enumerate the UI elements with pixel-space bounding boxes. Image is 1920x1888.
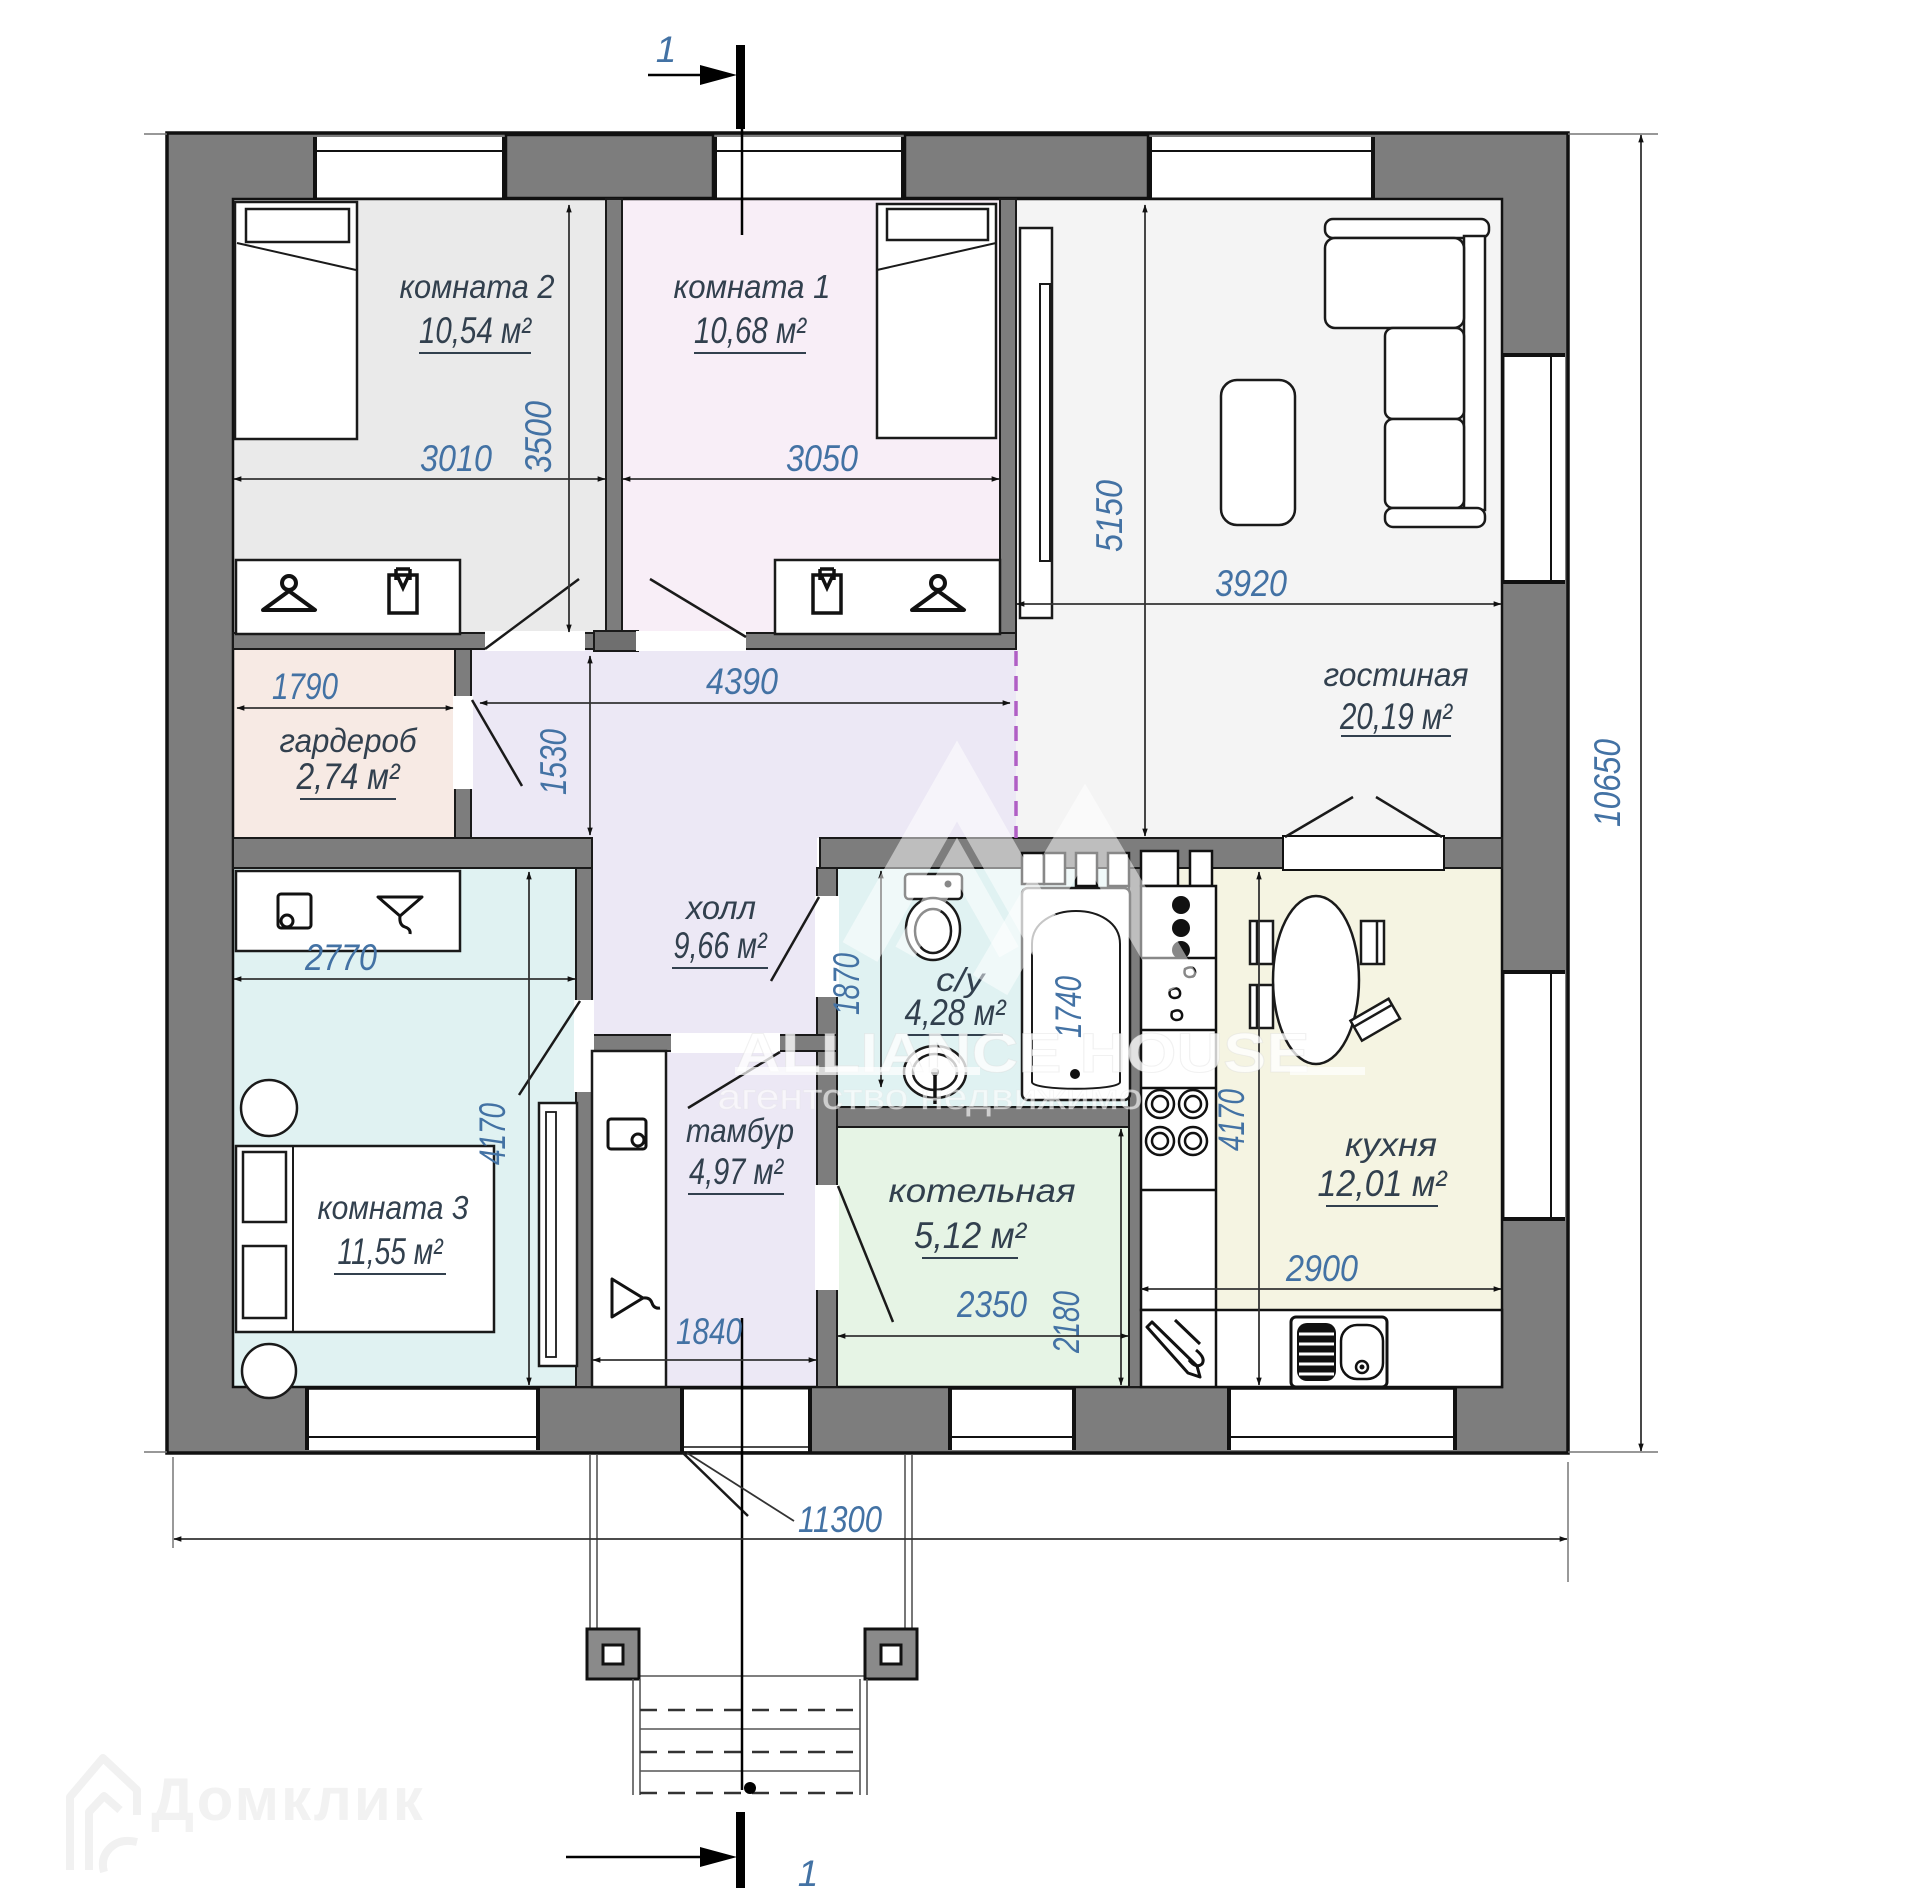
svg-text:3500: 3500 [518,401,559,473]
svg-text:5,12 м²: 5,12 м² [914,1215,1028,1256]
svg-text:1790: 1790 [272,666,338,707]
svg-text:тамбур: тамбур [686,1112,794,1149]
svg-text:9,66 м²: 9,66 м² [674,925,768,966]
svg-text:2900: 2900 [1285,1248,1358,1289]
svg-text:4,97 м²: 4,97 м² [689,1151,784,1192]
svg-text:4170: 4170 [1211,1089,1252,1151]
svg-text:12,01 м²: 12,01 м² [1318,1163,1449,1204]
svg-text:2,74 м²: 2,74 м² [296,756,401,797]
svg-text:1840: 1840 [676,1311,742,1352]
svg-text:11300: 11300 [798,1499,882,1540]
svg-text:гардероб: гардероб [280,722,418,759]
svg-text:3050: 3050 [786,438,858,479]
svg-text:1: 1 [798,1853,819,1888]
svg-text:1: 1 [656,29,677,70]
svg-text:10,54 м²: 10,54 м² [419,310,532,351]
svg-text:5150: 5150 [1089,480,1130,552]
svg-text:Домклик: Домклик [151,1766,425,1833]
svg-text:2350: 2350 [956,1284,1027,1325]
svg-text:котельная: котельная [889,1172,1076,1209]
svg-text:2770: 2770 [304,937,377,978]
svg-text:комната 2: комната 2 [400,268,555,305]
svg-text:10,68 м²: 10,68 м² [694,310,807,351]
svg-text:3010: 3010 [420,438,492,479]
svg-text:20,19 м²: 20,19 м² [1339,696,1453,737]
svg-text:1530: 1530 [533,729,574,795]
svg-text:комната 3: комната 3 [318,1189,470,1226]
svg-text:агентство недвижимо: агентство недвижимо [718,1076,1143,1117]
svg-text:11,55 м²: 11,55 м² [338,1231,444,1272]
svg-text:1870: 1870 [826,953,867,1015]
svg-text:3920: 3920 [1215,563,1287,604]
svg-text:4390: 4390 [706,661,778,702]
svg-text:кухня: кухня [1345,1126,1437,1163]
svg-text:4170: 4170 [472,1103,513,1165]
svg-text:10650: 10650 [1587,739,1628,827]
svg-text:2180: 2180 [1046,1291,1087,1354]
svg-text:гостиная: гостиная [1324,656,1469,693]
svg-text:холл: холл [684,889,756,926]
svg-text:комната 1: комната 1 [674,268,831,305]
